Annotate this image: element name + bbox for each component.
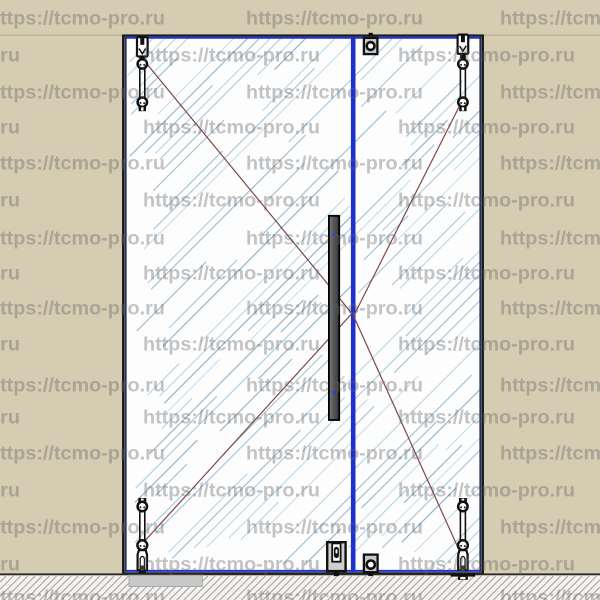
svg-text:https://tcmo-pro.ru: https://tcmo-pro.ru <box>500 298 600 320</box>
svg-text:https://tcmo-pro.ru: https://tcmo-pro.ru <box>0 190 20 212</box>
svg-text:https://tcmo-pro.ru: https://tcmo-pro.ru <box>0 375 165 397</box>
svg-text:https://tcmo-pro.ru: https://tcmo-pro.ru <box>0 443 165 465</box>
svg-text:https://tcmo-pro.ru: https://tcmo-pro.ru <box>0 517 165 539</box>
svg-text:https://tcmo-pro.ru: https://tcmo-pro.ru <box>0 153 165 175</box>
svg-text:https://tcmo-pro.ru: https://tcmo-pro.ru <box>398 407 575 429</box>
svg-text:https://tcmo-pro.ru: https://tcmo-pro.ru <box>143 554 320 576</box>
svg-text:https://tcmo-pro.ru: https://tcmo-pro.ru <box>0 298 165 320</box>
svg-text:https://tcmo-pro.ru: https://tcmo-pro.ru <box>143 407 320 429</box>
svg-text:https://tcmo-pro.ru: https://tcmo-pro.ru <box>398 334 575 356</box>
svg-text:https://tcmo-pro.ru: https://tcmo-pro.ru <box>500 375 600 397</box>
svg-text:https://tcmo-pro.ru: https://tcmo-pro.ru <box>0 554 20 576</box>
svg-text:https://tcmo-pro.ru: https://tcmo-pro.ru <box>398 263 575 285</box>
svg-text:https://tcmo-pro.ru: https://tcmo-pro.ru <box>398 480 575 502</box>
svg-text:https://tcmo-pro.ru: https://tcmo-pro.ru <box>143 334 320 356</box>
svg-text:https://tcmo-pro.ru: https://tcmo-pro.ru <box>246 153 423 175</box>
svg-text:https://tcmo-pro.ru: https://tcmo-pro.ru <box>246 587 423 600</box>
svg-text:https://tcmo-pro.ru: https://tcmo-pro.ru <box>500 443 600 465</box>
svg-text:https://tcmo-pro.ru: https://tcmo-pro.ru <box>143 190 320 212</box>
svg-text:https://tcmo-pro.ru: https://tcmo-pro.ru <box>398 117 575 139</box>
svg-text:https://tcmo-pro.ru: https://tcmo-pro.ru <box>500 587 600 600</box>
svg-text:https://tcmo-pro.ru: https://tcmo-pro.ru <box>246 82 423 104</box>
svg-text:https://tcmo-pro.ru: https://tcmo-pro.ru <box>143 263 320 285</box>
svg-text:https://tcmo-pro.ru: https://tcmo-pro.ru <box>0 8 165 30</box>
svg-text:https://tcmo-pro.ru: https://tcmo-pro.ru <box>0 117 20 139</box>
svg-text:https://tcmo-pro.ru: https://tcmo-pro.ru <box>143 45 320 67</box>
svg-text:https://tcmo-pro.ru: https://tcmo-pro.ru <box>500 517 600 539</box>
svg-text:https://tcmo-pro.ru: https://tcmo-pro.ru <box>246 443 423 465</box>
svg-text:https://tcmo-pro.ru: https://tcmo-pro.ru <box>0 407 20 429</box>
svg-text:https://tcmo-pro.ru: https://tcmo-pro.ru <box>500 153 600 175</box>
svg-text:https://tcmo-pro.ru: https://tcmo-pro.ru <box>398 190 575 212</box>
svg-text:https://tcmo-pro.ru: https://tcmo-pro.ru <box>0 263 20 285</box>
svg-text:https://tcmo-pro.ru: https://tcmo-pro.ru <box>398 554 575 576</box>
svg-text:https://tcmo-pro.ru: https://tcmo-pro.ru <box>0 45 20 67</box>
svg-text:https://tcmo-pro.ru: https://tcmo-pro.ru <box>500 8 600 30</box>
svg-text:https://tcmo-pro.ru: https://tcmo-pro.ru <box>246 375 423 397</box>
svg-text:https://tcmo-pro.ru: https://tcmo-pro.ru <box>0 82 165 104</box>
svg-text:https://tcmo-pro.ru: https://tcmo-pro.ru <box>246 228 423 250</box>
svg-text:https://tcmo-pro.ru: https://tcmo-pro.ru <box>246 517 423 539</box>
svg-text:https://tcmo-pro.ru: https://tcmo-pro.ru <box>500 82 600 104</box>
svg-text:https://tcmo-pro.ru: https://tcmo-pro.ru <box>0 334 20 356</box>
svg-text:https://tcmo-pro.ru: https://tcmo-pro.ru <box>246 298 423 320</box>
svg-text:https://tcmo-pro.ru: https://tcmo-pro.ru <box>0 587 165 600</box>
svg-text:https://tcmo-pro.ru: https://tcmo-pro.ru <box>143 480 320 502</box>
svg-text:https://tcmo-pro.ru: https://tcmo-pro.ru <box>0 480 20 502</box>
svg-text:https://tcmo-pro.ru: https://tcmo-pro.ru <box>500 228 600 250</box>
svg-text:https://tcmo-pro.ru: https://tcmo-pro.ru <box>246 8 423 30</box>
svg-text:https://tcmo-pro.ru: https://tcmo-pro.ru <box>0 228 165 250</box>
svg-text:https://tcmo-pro.ru: https://tcmo-pro.ru <box>398 45 575 67</box>
svg-text:https://tcmo-pro.ru: https://tcmo-pro.ru <box>143 117 320 139</box>
